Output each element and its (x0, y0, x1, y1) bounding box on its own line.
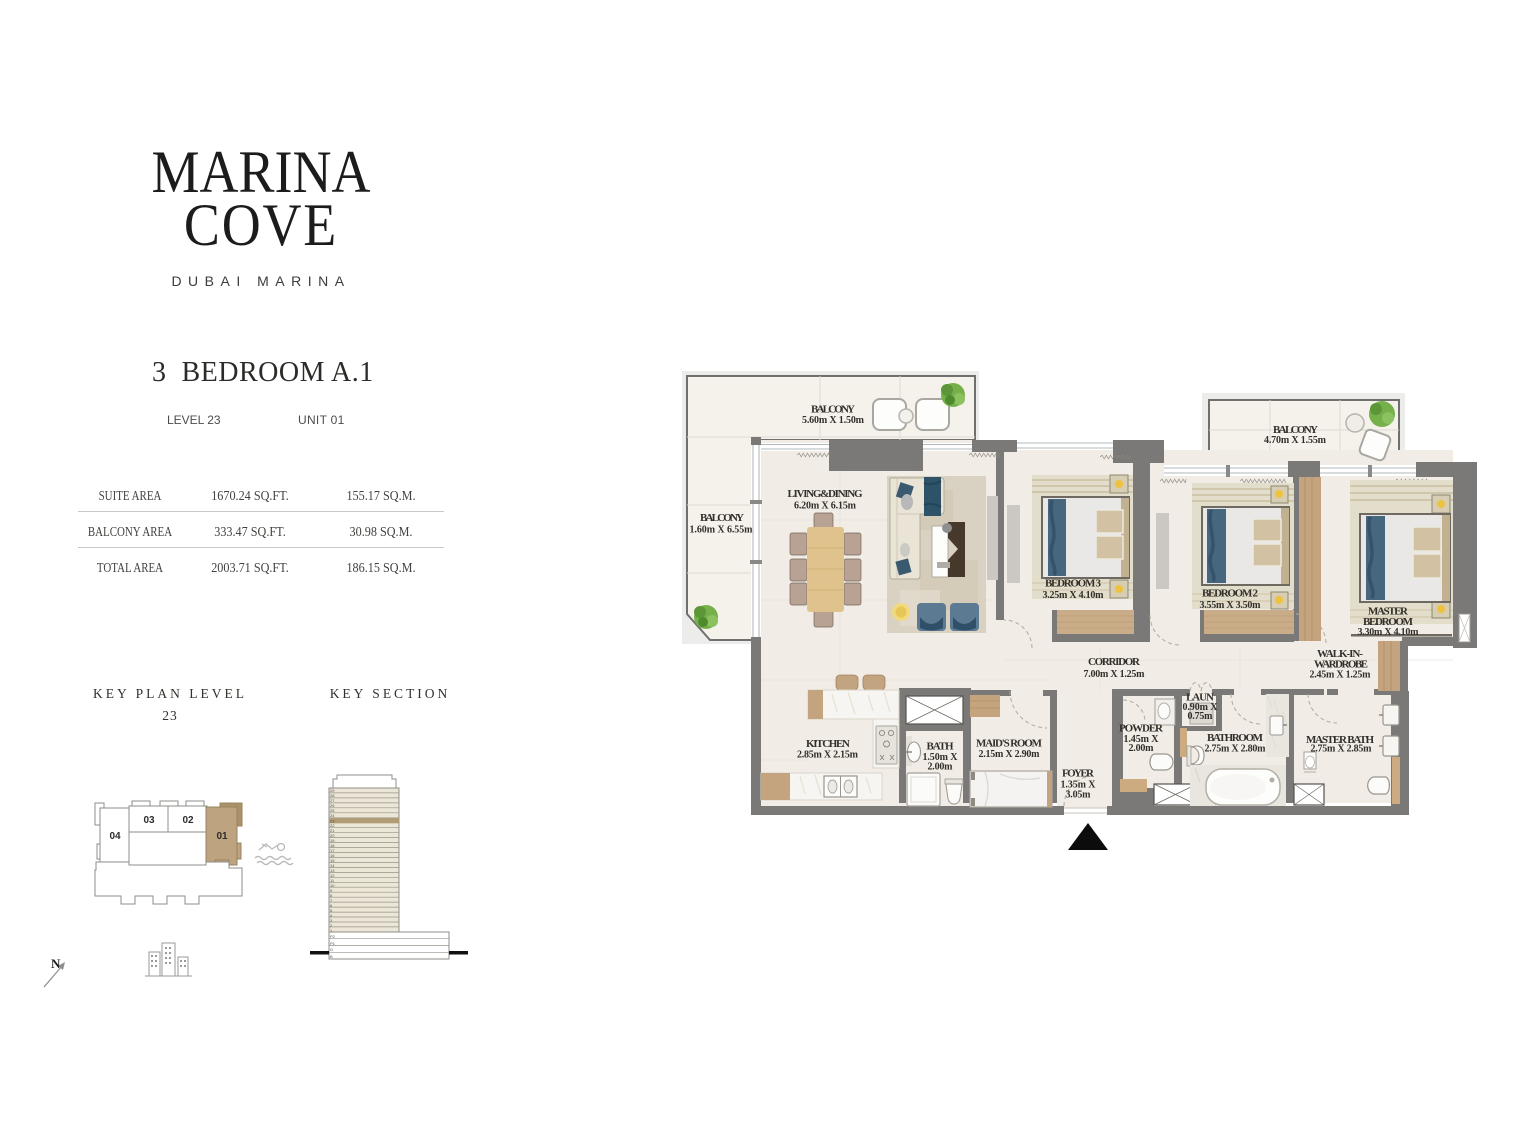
svg-text:6.20m X 6.15m: 6.20m X 6.15m (794, 501, 857, 512)
svg-text:P2: P2 (330, 934, 336, 939)
svg-text:3.25m X 4.10m: 3.25m X 4.10m (1043, 590, 1105, 601)
svg-text:2.85m X 2.15m: 2.85m X 2.15m (797, 750, 859, 761)
svg-text:2.00m: 2.00m (928, 762, 954, 773)
svg-text:CORRIDOR: CORRIDOR (1088, 656, 1141, 668)
svg-text:4.70m X 1.55m: 4.70m X 1.55m (1264, 435, 1327, 446)
svg-text:BALCONY: BALCONY (811, 404, 855, 416)
svg-text:B: B (330, 954, 333, 959)
svg-text:04: 04 (109, 831, 121, 842)
svg-text:P1: P1 (330, 941, 336, 946)
svg-text:7.00m X 1.25m: 7.00m X 1.25m (1084, 669, 1146, 680)
svg-text:G: G (330, 947, 333, 952)
svg-text:BATHROOM: BATHROOM (1207, 732, 1264, 744)
svg-text:KITCHEN: KITCHEN (806, 738, 850, 750)
svg-text:0.75m: 0.75m (1188, 711, 1214, 722)
svg-text:02: 02 (182, 815, 194, 826)
svg-text:3.55m X 3.50m: 3.55m X 3.50m (1200, 600, 1262, 611)
svg-text:FOYER: FOYER (1062, 768, 1095, 780)
svg-text:MAID'S ROOM: MAID'S ROOM (976, 738, 1043, 750)
svg-text:BEDROOM 3: BEDROOM 3 (1045, 578, 1102, 590)
svg-text:2.75m X 2.85m: 2.75m X 2.85m (1311, 744, 1373, 755)
svg-text:01: 01 (216, 831, 228, 842)
svg-text:BATH: BATH (927, 741, 954, 753)
svg-text:2.75m X 2.80m: 2.75m X 2.80m (1205, 744, 1267, 755)
svg-text:BEDROOM 2: BEDROOM 2 (1202, 588, 1259, 600)
svg-text:LIVING&DINING: LIVING&DINING (788, 488, 863, 500)
svg-text:POWDER: POWDER (1119, 723, 1164, 735)
svg-text:BALCONY: BALCONY (700, 512, 744, 524)
svg-text:2.15m X 2.90m: 2.15m X 2.90m (979, 749, 1041, 760)
svg-text:1.60m X 6.55m: 1.60m X 6.55m (690, 525, 754, 536)
svg-text:3.05m: 3.05m (1066, 790, 1092, 801)
svg-text:5.60m X 1.50m: 5.60m X 1.50m (802, 415, 865, 426)
svg-text:2.45m X 1.25m: 2.45m X 1.25m (1310, 670, 1372, 681)
svg-text:3.30m X 4.10m: 3.30m X 4.10m (1358, 627, 1420, 638)
svg-text:2.00m: 2.00m (1129, 743, 1155, 754)
svg-text:03: 03 (143, 815, 155, 826)
svg-text:24: 24 (330, 813, 335, 818)
svg-text:N: N (51, 956, 61, 971)
